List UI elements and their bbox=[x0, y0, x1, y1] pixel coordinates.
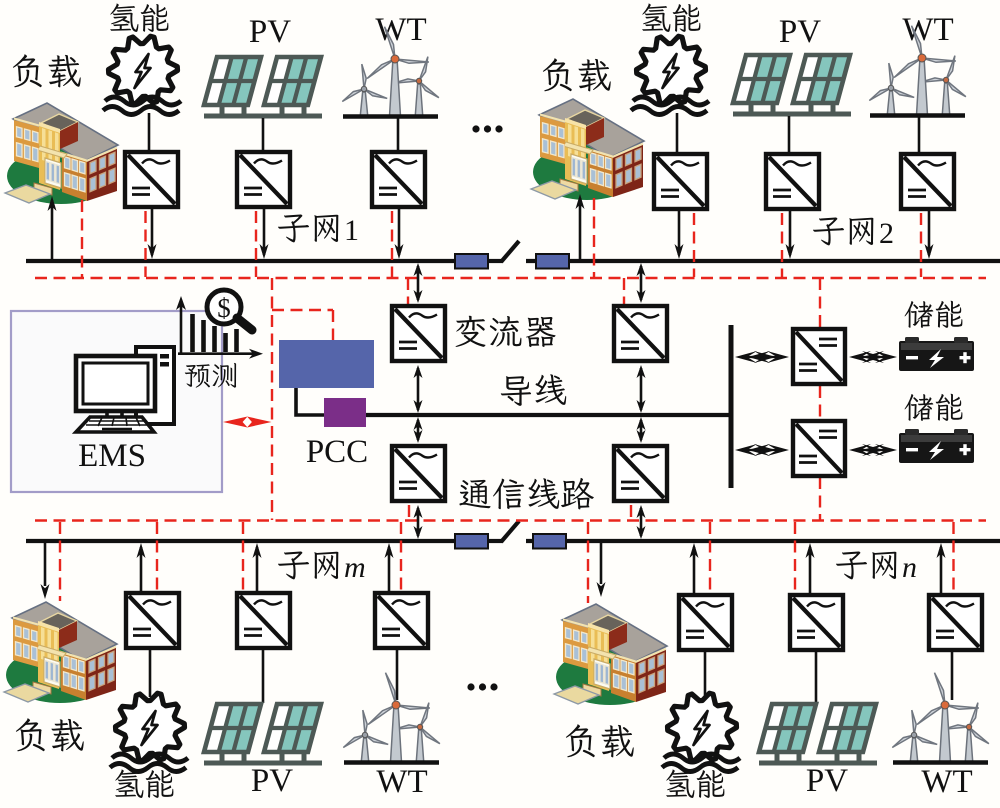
svg-text:2: 2 bbox=[879, 217, 894, 250]
svg-text:1: 1 bbox=[344, 214, 359, 247]
svg-text:WT: WT bbox=[375, 12, 426, 48]
svg-text:PV: PV bbox=[779, 14, 821, 50]
svg-text:$: $ bbox=[217, 293, 231, 323]
svg-text:PV: PV bbox=[249, 14, 291, 50]
svg-text:PV: PV bbox=[806, 763, 848, 799]
svg-text:EMS: EMS bbox=[78, 438, 146, 474]
svg-text:WT: WT bbox=[376, 764, 427, 800]
svg-text:WT: WT bbox=[921, 764, 972, 800]
svg-text:PV: PV bbox=[251, 763, 293, 799]
svg-text:PCC: PCC bbox=[306, 434, 368, 470]
svg-text:n: n bbox=[902, 551, 917, 584]
svg-text:WT: WT bbox=[902, 12, 953, 48]
svg-text:m: m bbox=[344, 551, 366, 584]
